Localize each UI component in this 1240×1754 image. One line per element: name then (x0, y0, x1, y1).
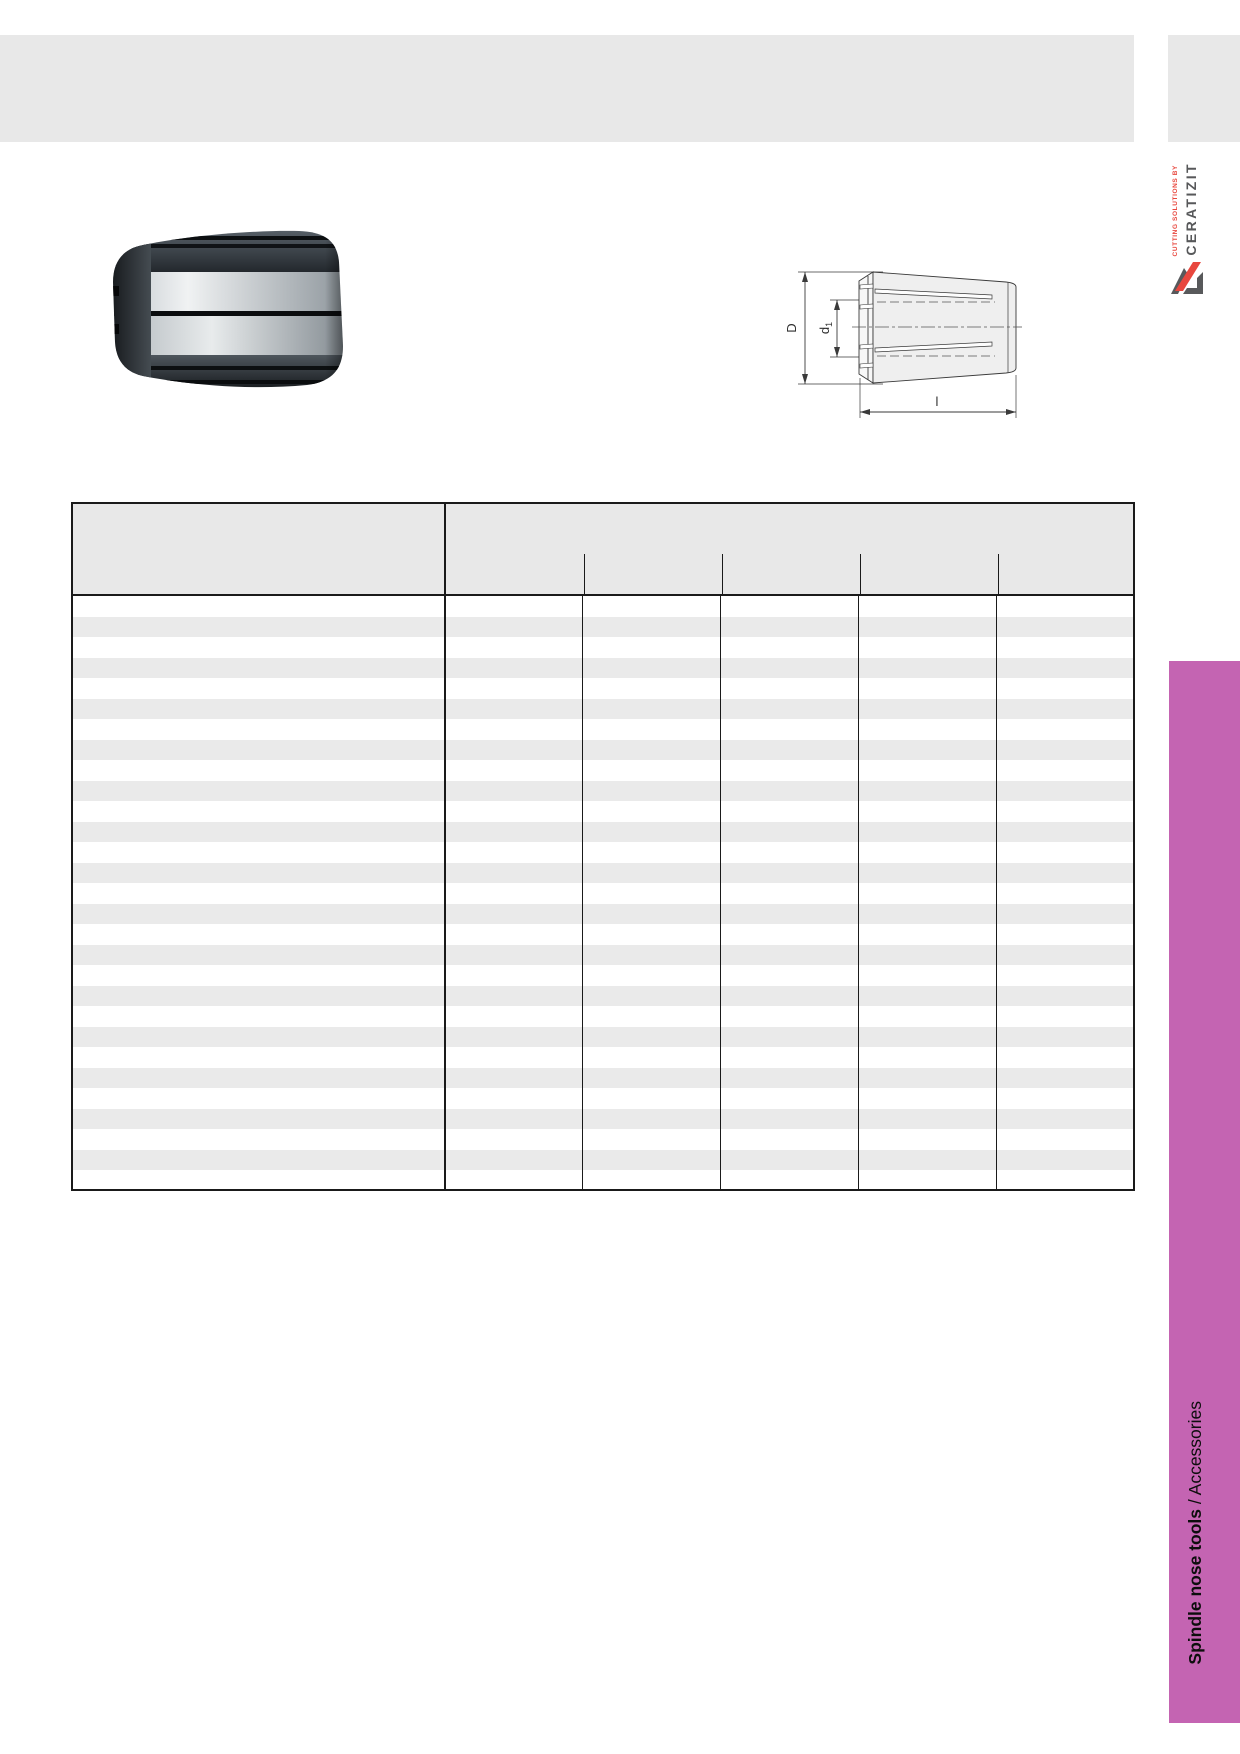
table-cell (582, 1006, 720, 1027)
table-cell (444, 883, 582, 904)
header-subdivider (584, 554, 585, 594)
table-row (73, 760, 1133, 781)
table-cell (720, 678, 858, 699)
table-cell (858, 1129, 996, 1150)
table-cell (582, 740, 720, 761)
table-cell (73, 1150, 444, 1171)
table-cell (720, 1150, 858, 1171)
table-cell (996, 924, 1133, 945)
dim-label-l: l (936, 394, 939, 409)
table-row (73, 740, 1133, 761)
table-cell (858, 617, 996, 638)
table-cell (444, 1170, 582, 1191)
table-cell (996, 965, 1133, 986)
table-cell (444, 801, 582, 822)
table-cell (720, 904, 858, 925)
table-cell (996, 801, 1133, 822)
table-cell (720, 617, 858, 638)
table-cell (996, 986, 1133, 1007)
table-row (73, 1006, 1133, 1027)
table-header (73, 504, 1133, 596)
table-cell (582, 596, 720, 617)
table-row (73, 924, 1133, 945)
table-row (73, 637, 1133, 658)
table-cell (996, 842, 1133, 863)
table-cell (444, 760, 582, 781)
table-cell (444, 719, 582, 740)
table-cell (720, 822, 858, 843)
table-cell (996, 883, 1133, 904)
table-cell (858, 965, 996, 986)
table-cell (444, 904, 582, 925)
table-cell (73, 924, 444, 945)
table-cell (858, 883, 996, 904)
table-cell (444, 637, 582, 658)
table-cell (858, 760, 996, 781)
table-cell (858, 1047, 996, 1068)
dim-label-D: D (784, 323, 799, 332)
table-cell (582, 842, 720, 863)
table-cell (858, 1088, 996, 1109)
table-cell (73, 883, 444, 904)
table-row (73, 1150, 1133, 1171)
table-row (73, 719, 1133, 740)
table-cell (720, 924, 858, 945)
table-cell (720, 986, 858, 1007)
table-cell (720, 596, 858, 617)
table-row (73, 1088, 1133, 1109)
table-cell (444, 678, 582, 699)
table-cell (996, 678, 1133, 699)
table-cell (996, 637, 1133, 658)
table-row (73, 842, 1133, 863)
table-row (73, 1047, 1133, 1068)
table-cell (444, 1129, 582, 1150)
collet-photo (103, 228, 345, 391)
table-cell (720, 781, 858, 802)
table-row (73, 781, 1133, 802)
table-cell (73, 781, 444, 802)
table-cell (582, 904, 720, 925)
table-cell (73, 658, 444, 679)
table-cell (73, 1109, 444, 1130)
table-cell (720, 863, 858, 884)
table-cell (444, 1150, 582, 1171)
table-cell (858, 1170, 996, 1191)
table-cell (73, 740, 444, 761)
table-cell (858, 904, 996, 925)
table-cell (582, 637, 720, 658)
table-cell (858, 740, 996, 761)
table-cell (73, 822, 444, 843)
table-cell (720, 883, 858, 904)
table-row (73, 801, 1133, 822)
table-cell (720, 719, 858, 740)
table-cell (858, 863, 996, 884)
table-cell (582, 760, 720, 781)
table-cell (582, 617, 720, 638)
table-cell (73, 904, 444, 925)
table-cell (996, 699, 1133, 720)
table-cell (996, 1088, 1133, 1109)
table-cell (73, 678, 444, 699)
table-cell (444, 1047, 582, 1068)
table-cell (73, 986, 444, 1007)
table-cell (73, 637, 444, 658)
table-cell (996, 1006, 1133, 1027)
table-cell (720, 740, 858, 761)
table-cell (582, 863, 720, 884)
table-cell (858, 678, 996, 699)
table-cell (858, 1150, 996, 1171)
table-cell (582, 719, 720, 740)
table-cell (582, 1170, 720, 1191)
table-cell (720, 1109, 858, 1130)
logo-tagline: CUTTING SOLUTIONS BY (1172, 165, 1179, 256)
table-cell (720, 965, 858, 986)
table-cell (73, 596, 444, 617)
table-cell (996, 1068, 1133, 1089)
table-cell (996, 822, 1133, 843)
table-cell (582, 678, 720, 699)
table-row (73, 945, 1133, 966)
table-row (73, 596, 1133, 617)
chapter-title: Spindle nose tools / Accessories (1185, 1401, 1206, 1665)
table-cell (444, 1027, 582, 1048)
table-cell (858, 1109, 996, 1130)
table-cell (858, 1027, 996, 1048)
table-cell (73, 1129, 444, 1150)
table-cell (73, 1088, 444, 1109)
header-subdivider (722, 554, 723, 594)
table-row (73, 678, 1133, 699)
table-cell (582, 1027, 720, 1048)
table-cell (720, 1027, 858, 1048)
table-row (73, 1027, 1133, 1048)
table-cell (858, 596, 996, 617)
table-cell (73, 1006, 444, 1027)
chapter-title-sub: / Accessories (1185, 1401, 1205, 1504)
table-cell (73, 801, 444, 822)
table-cell (444, 924, 582, 945)
table-cell (996, 617, 1133, 638)
table-cell (858, 945, 996, 966)
table-cell (444, 658, 582, 679)
table-cell (858, 924, 996, 945)
table-cell (996, 596, 1133, 617)
table-cell (858, 781, 996, 802)
table-row (73, 965, 1133, 986)
table-cell (720, 842, 858, 863)
table-row (73, 617, 1133, 638)
table-cell (582, 822, 720, 843)
table-cell (73, 965, 444, 986)
table-cell (73, 1027, 444, 1048)
table-cell (720, 1006, 858, 1027)
table-row (73, 883, 1133, 904)
table-row (73, 658, 1133, 679)
table-cell (73, 863, 444, 884)
table-cell (858, 822, 996, 843)
table-cell (996, 1170, 1133, 1191)
table-cell (444, 986, 582, 1007)
dim-label-d1: d1 (817, 322, 834, 334)
table-cell (720, 801, 858, 822)
table-row (73, 904, 1133, 925)
table-cell (444, 740, 582, 761)
table-cell (444, 617, 582, 638)
table-row (73, 699, 1133, 720)
table-cell (444, 1088, 582, 1109)
table-cell (444, 1109, 582, 1130)
table-cell (444, 699, 582, 720)
table-cell (444, 842, 582, 863)
table-cell (582, 1150, 720, 1171)
table-cell (582, 658, 720, 679)
table-cell (444, 965, 582, 986)
table-cell (582, 1129, 720, 1150)
table-cell (444, 596, 582, 617)
table-cell (73, 1068, 444, 1089)
table-body (73, 596, 1133, 1191)
table-row (73, 1068, 1133, 1089)
table-cell (582, 945, 720, 966)
table-cell (996, 781, 1133, 802)
table-cell (996, 904, 1133, 925)
table-cell (444, 863, 582, 884)
table-row (73, 822, 1133, 843)
table-cell (996, 1109, 1133, 1130)
table-cell (720, 699, 858, 720)
table-cell (582, 883, 720, 904)
table-cell (996, 658, 1133, 679)
chapter-title-main: Spindle nose tools (1185, 1509, 1205, 1665)
table-cell (582, 1068, 720, 1089)
table-cell (73, 617, 444, 638)
table-cell (858, 1068, 996, 1089)
table-cell (582, 801, 720, 822)
table-cell (73, 1170, 444, 1191)
catalog-page: CUTTING SOLUTIONS BY CERATIZIT (0, 0, 1240, 1754)
table-cell (858, 658, 996, 679)
table-cell (996, 863, 1133, 884)
table-cell (444, 822, 582, 843)
table-cell (996, 760, 1133, 781)
table-cell (720, 1129, 858, 1150)
ceratizit-logo: CUTTING SOLUTIONS BY CERATIZIT (1170, 150, 1210, 256)
table-cell (73, 842, 444, 863)
table-cell (720, 1170, 858, 1191)
header-index-tab (1168, 35, 1240, 142)
table-cell (996, 1047, 1133, 1068)
ceratizit-triangle-icon (1171, 262, 1204, 296)
table-cell (582, 1047, 720, 1068)
table-cell (582, 1088, 720, 1109)
table-row (73, 986, 1133, 1007)
chapter-accent-bar: Spindle nose tools / Accessories (1169, 661, 1240, 1723)
table-cell (996, 1027, 1133, 1048)
table-cell (720, 637, 858, 658)
table-cell (996, 1129, 1133, 1150)
table-row (73, 1170, 1133, 1191)
table-cell (996, 1150, 1133, 1171)
table-cell (444, 781, 582, 802)
table-cell (582, 924, 720, 945)
table-cell (73, 719, 444, 740)
table-cell (720, 1068, 858, 1089)
table-cell (720, 1047, 858, 1068)
table-cell (858, 1006, 996, 1027)
table-cell (996, 740, 1133, 761)
table-cell (720, 658, 858, 679)
table-cell (996, 719, 1133, 740)
spec-table (71, 502, 1135, 1191)
table-cell (582, 1109, 720, 1130)
table-cell (858, 719, 996, 740)
table-cell (720, 1088, 858, 1109)
table-cell (858, 801, 996, 822)
table-cell (582, 699, 720, 720)
table-cell (582, 965, 720, 986)
table-row (73, 1129, 1133, 1150)
logo-brand: CERATIZIT (1183, 162, 1199, 256)
table-row (73, 863, 1133, 884)
table-cell (858, 637, 996, 658)
table-cell (858, 986, 996, 1007)
table-cell (73, 945, 444, 966)
header-band (0, 35, 1134, 142)
table-cell (996, 945, 1133, 966)
table-cell (444, 1006, 582, 1027)
table-row (73, 1109, 1133, 1130)
table-cell (73, 1047, 444, 1068)
table-cell (720, 945, 858, 966)
table-cell (444, 1068, 582, 1089)
table-cell (582, 986, 720, 1007)
table-cell (73, 699, 444, 720)
header-divider (444, 504, 446, 594)
table-cell (582, 781, 720, 802)
table-cell (858, 699, 996, 720)
header-subdivider (860, 554, 861, 594)
table-cell (720, 760, 858, 781)
table-cell (858, 842, 996, 863)
table-cell (444, 945, 582, 966)
table-cell (73, 760, 444, 781)
header-subdivider (998, 554, 999, 594)
collet-dimension-drawing: D d1 l (780, 215, 1030, 430)
